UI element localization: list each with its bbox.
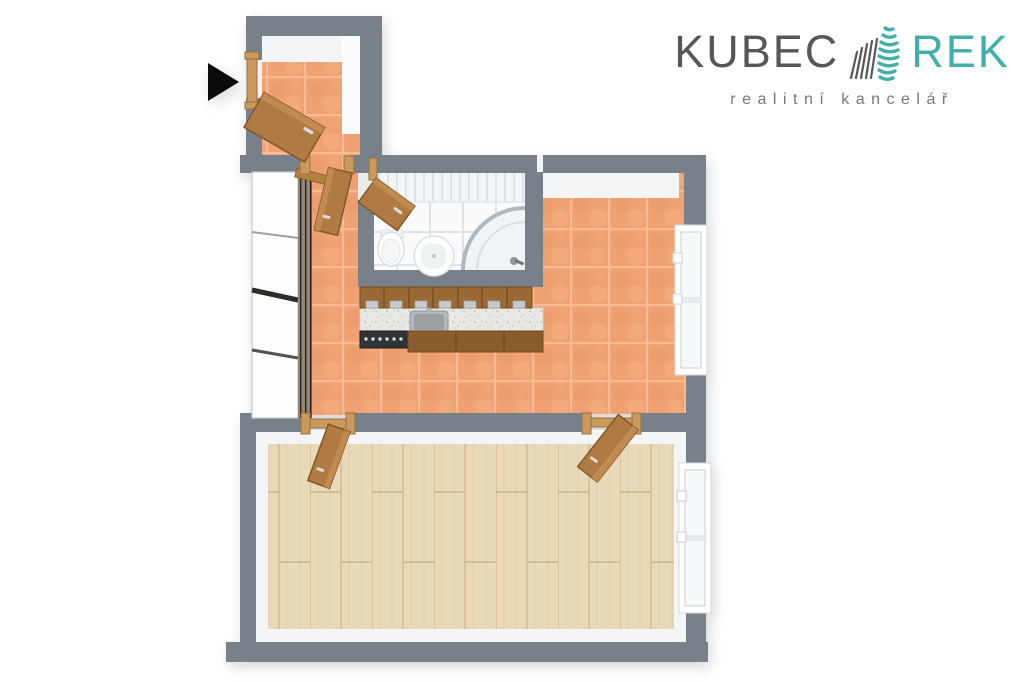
divider-wall-mid: [352, 413, 588, 432]
round-washbasin: [414, 236, 454, 276]
main-wall-notch: [537, 155, 543, 173]
entry-right-wall: [360, 16, 382, 158]
logo-row: KUBEC: [664, 20, 1020, 82]
living-right-wall-upper: [686, 432, 706, 466]
logo-text-kubec: KUBEC: [674, 29, 839, 74]
kitchen-window: [673, 225, 707, 375]
divider-wall-right: [638, 413, 706, 432]
stove: [360, 331, 408, 348]
living-bottom-wall: [226, 642, 708, 662]
living-right-wall-lower: [686, 610, 706, 656]
window-handle: [677, 491, 686, 501]
living-room-window: [677, 463, 711, 613]
bathroom-east-wall: [525, 172, 543, 287]
living-left-face: [254, 430, 268, 646]
entrance-door-frame: [247, 54, 257, 108]
bathroom-door-jamb: [369, 158, 377, 180]
agency-logo: KUBEC: [664, 20, 1020, 109]
sink-tap: [427, 308, 432, 313]
window-handle: [673, 294, 682, 304]
bathroom-south-wall: [358, 270, 543, 287]
kitchen-right-wall-upper: [684, 155, 706, 228]
main-wall-right: [350, 155, 688, 173]
window-handle: [677, 532, 686, 542]
toilet: [378, 230, 404, 266]
entrance-arrow-icon: [208, 63, 239, 101]
kitchen-counter: [360, 287, 543, 352]
entry-right-face: [342, 34, 360, 134]
kitchen-top-face: [543, 172, 679, 198]
logo-text-rek: REK: [911, 29, 1010, 74]
kitchen-sink: [410, 308, 448, 334]
living-left-wall: [240, 413, 256, 660]
logo-tagline: realitní kancelář: [664, 91, 1020, 109]
closet-slat-front: [298, 172, 312, 418]
striped-building-logo-icon: [848, 20, 902, 82]
kitchen-lower-cabinets: [408, 331, 543, 352]
floorplan-page: KUBEC: [0, 0, 1024, 682]
kitchen-upper-cabinets: [360, 287, 532, 308]
window-handle: [673, 253, 682, 263]
